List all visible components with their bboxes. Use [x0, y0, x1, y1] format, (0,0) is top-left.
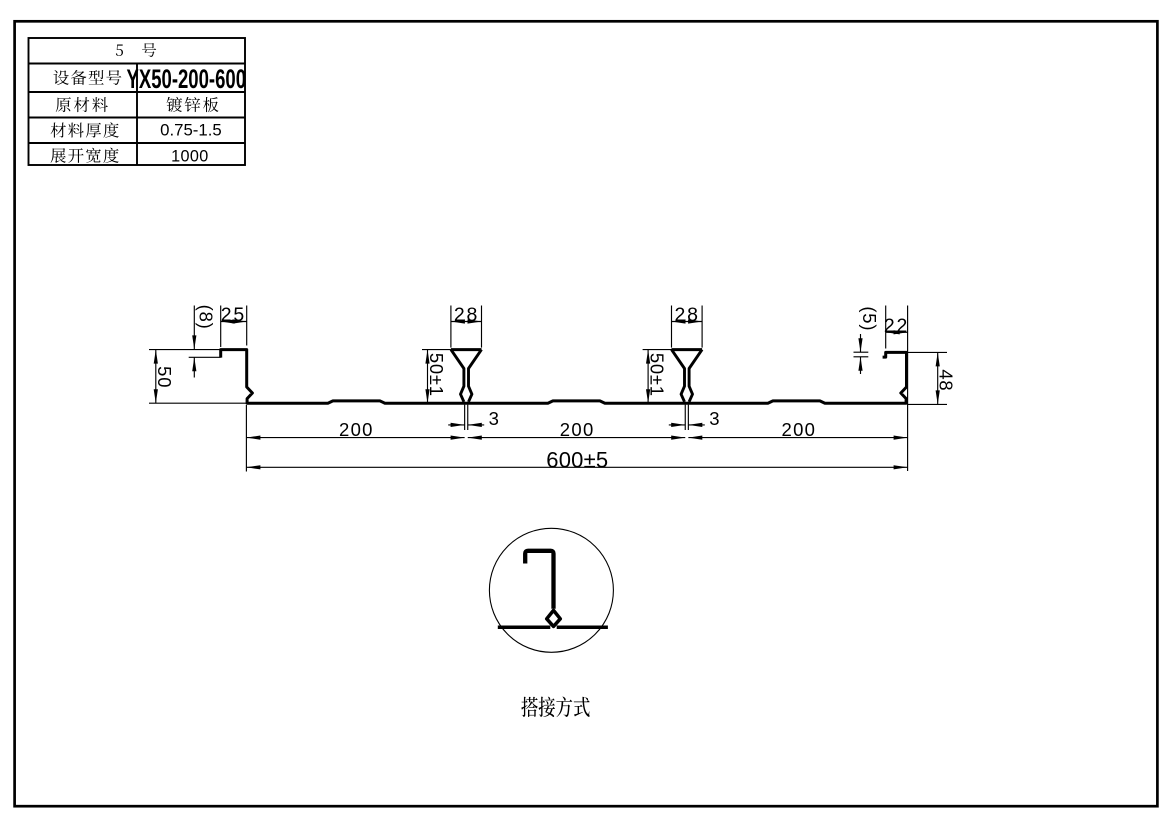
svg-text:200: 200 — [339, 419, 374, 440]
svg-text:(5): (5) — [859, 306, 880, 331]
svg-text:50±1: 50±1 — [647, 353, 668, 397]
svg-text:3: 3 — [709, 408, 721, 429]
svg-text:1000: 1000 — [171, 147, 209, 165]
svg-text:28: 28 — [454, 304, 479, 326]
svg-text:22: 22 — [884, 315, 909, 337]
svg-text:25: 25 — [221, 304, 246, 326]
svg-text:200: 200 — [560, 419, 595, 440]
svg-text:50: 50 — [154, 366, 175, 388]
svg-text:3: 3 — [489, 408, 501, 429]
svg-text:48: 48 — [936, 369, 957, 391]
svg-text:600±5: 600±5 — [546, 447, 608, 472]
svg-text:YX50-200-600: YX50-200-600 — [127, 64, 247, 94]
svg-text:50±1: 50±1 — [426, 353, 447, 397]
svg-text:28: 28 — [674, 304, 699, 326]
svg-text:200: 200 — [782, 419, 817, 440]
svg-text:0.75-1.5: 0.75-1.5 — [160, 121, 222, 140]
svg-text:(8): (8) — [196, 305, 217, 330]
